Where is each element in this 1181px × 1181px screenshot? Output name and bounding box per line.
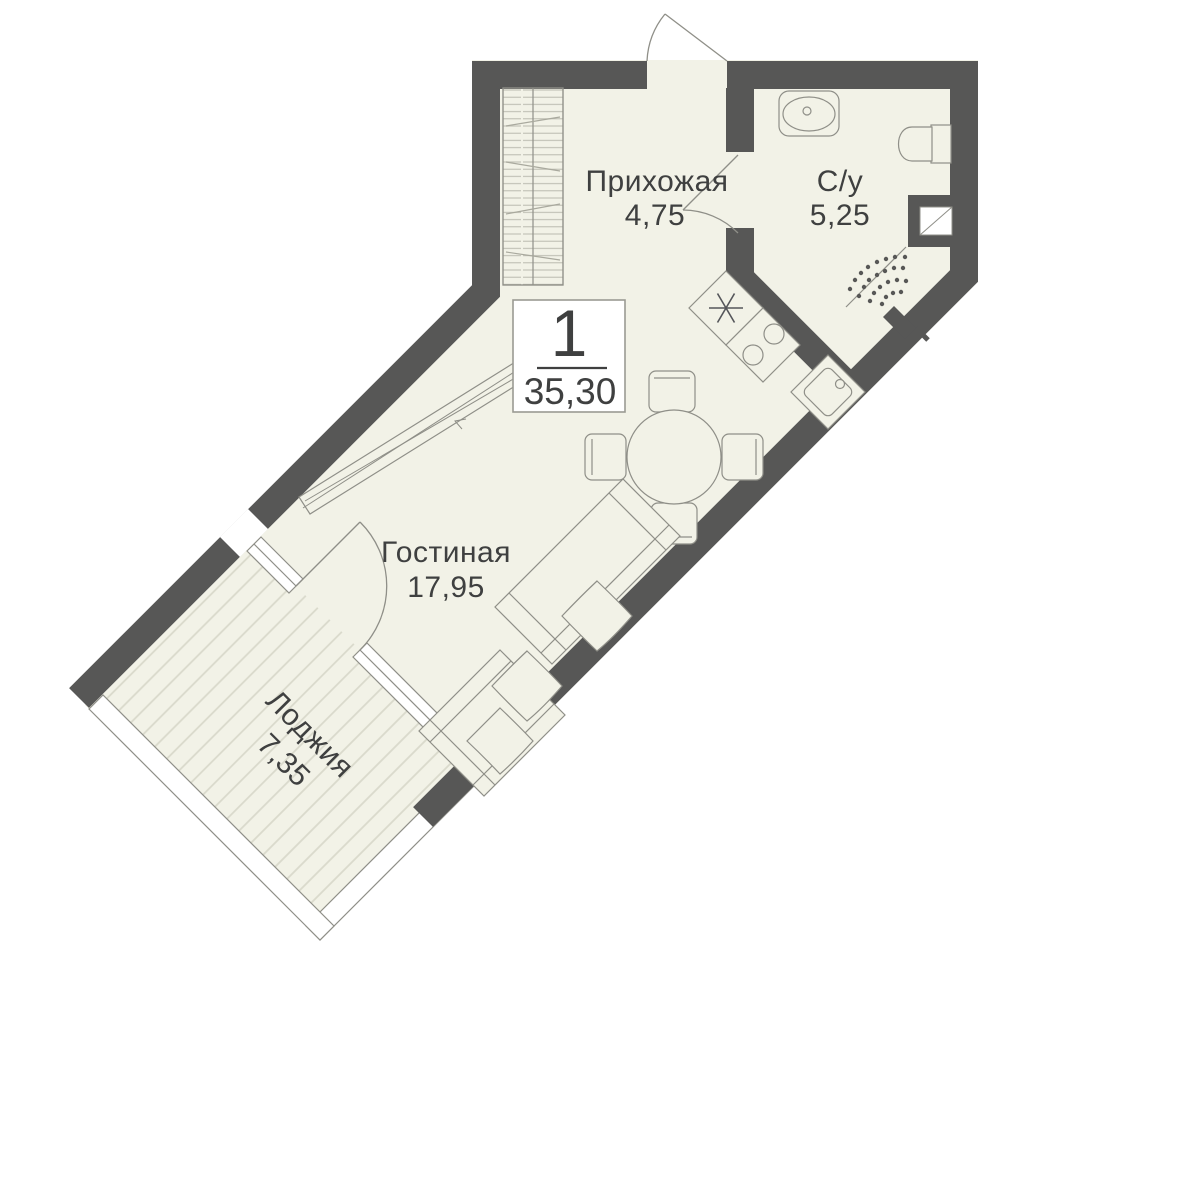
toilet bbox=[899, 125, 952, 163]
room-label-bathroom: С/у 5,25 bbox=[810, 165, 870, 232]
badge-total-area: 35,30 bbox=[524, 371, 617, 412]
svg-text:С/у: С/у bbox=[817, 165, 864, 198]
svg-text:Гостиная: Гостиная bbox=[381, 536, 511, 569]
badge-rooms-count: 1 bbox=[551, 296, 588, 370]
hallway-wardrobe bbox=[503, 88, 563, 285]
burner bbox=[764, 324, 784, 344]
dining-table bbox=[627, 410, 721, 504]
svg-text:4,75: 4,75 bbox=[625, 199, 685, 232]
chair bbox=[722, 434, 763, 480]
area-badge: 1 35,30 bbox=[513, 296, 625, 412]
ventilation-shaft-icon bbox=[908, 195, 978, 247]
chair bbox=[649, 371, 695, 412]
burner bbox=[743, 345, 763, 365]
svg-text:Прихожая: Прихожая bbox=[585, 165, 728, 198]
floor-plan-page: 1 35,30 Прихожая 4,75 С/у 5,25 Гостиная … bbox=[0, 0, 1181, 1181]
entrance-door-icon bbox=[647, 14, 727, 61]
floor-plan-svg: 1 35,30 Прихожая 4,75 С/у 5,25 Гостиная … bbox=[0, 0, 1181, 1181]
svg-text:17,95: 17,95 bbox=[407, 571, 485, 604]
bathroom-sink bbox=[779, 91, 839, 136]
chair bbox=[585, 434, 626, 480]
svg-text:5,25: 5,25 bbox=[810, 199, 870, 232]
